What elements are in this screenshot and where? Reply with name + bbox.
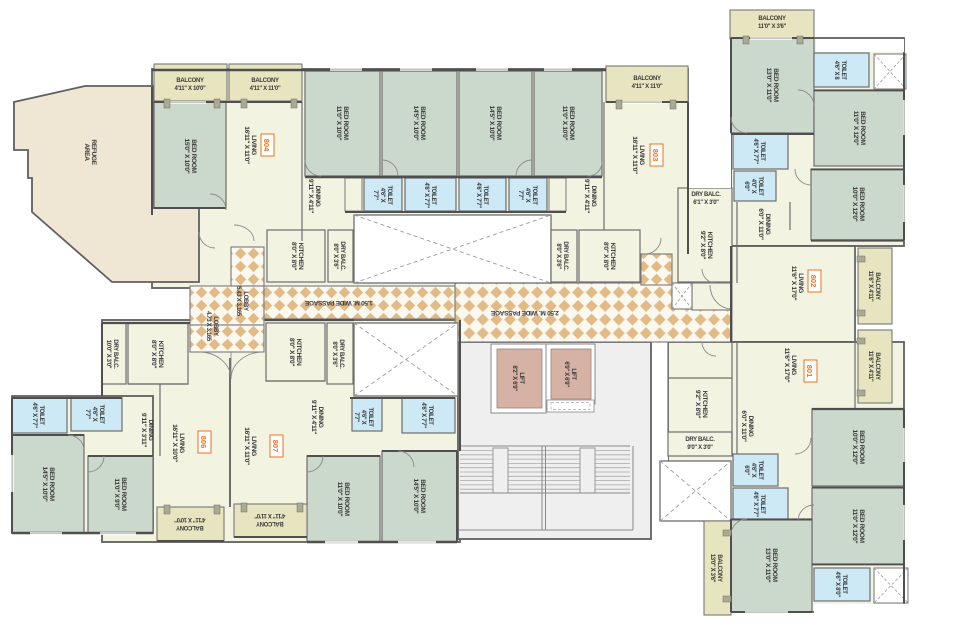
svg-text:7'7": 7'7" (84, 409, 90, 419)
svg-text:4'6" X 7'7": 4'6" X 7'7" (475, 182, 481, 208)
svg-text:6'9" X 6'9": 6'9" X 6'9" (563, 361, 569, 387)
svg-text:DRY BALC.: DRY BALC. (112, 339, 118, 369)
svg-text:13'0" X 11'0": 13'0" X 11'0" (765, 68, 772, 103)
svg-text:11'0" X 10'0": 11'0" X 10'0" (561, 106, 568, 141)
svg-text:LIVING: LIVING (250, 135, 257, 155)
svg-text:KITCHEN: KITCHEN (297, 243, 304, 270)
svg-text:4'11" X 10'0": 4'11" X 10'0" (174, 86, 206, 92)
svg-text:DINING: DINING (317, 407, 324, 428)
svg-text:KITCHEN: KITCHEN (295, 339, 302, 366)
svg-text:11'6" X 4'11": 11'6" X 4'11" (867, 351, 873, 382)
svg-text:804: 804 (262, 139, 271, 152)
svg-text:15'0" X 10'0": 15'0" X 10'0" (183, 139, 190, 174)
svg-text:REFUGE: REFUGE (90, 139, 97, 165)
svg-text:8'0" X 8'0": 8'0" X 8'0" (602, 242, 609, 270)
svg-text:802: 802 (809, 275, 818, 288)
svg-text:AREA: AREA (83, 143, 90, 161)
svg-text:LIVING: LIVING (250, 436, 257, 456)
svg-text:DRY BALC.: DRY BALC. (685, 437, 715, 443)
svg-text:LIVING: LIVING (638, 145, 645, 165)
svg-text:11'0" X 9'0": 11'0" X 9'0" (113, 478, 120, 509)
svg-text:8'0" X 3'6": 8'0" X 3'6" (555, 243, 561, 269)
svg-text:BED ROOM: BED ROOM (419, 106, 426, 140)
svg-text:9'11" X 4'11": 9'11" X 4'11" (307, 179, 314, 213)
svg-text:1.50 M. WIDE PASSAGE: 1.50 M. WIDE PASSAGE (304, 299, 373, 306)
svg-text:10'0" X 12'0": 10'0" X 12'0" (851, 187, 858, 222)
svg-text:13'0" X 11'0": 13'0" X 11'0" (764, 548, 771, 583)
svg-text:TOILET: TOILET (757, 176, 763, 196)
svg-text:TOILET: TOILET (759, 141, 765, 161)
svg-text:16'11" X 11'0": 16'11" X 11'0" (243, 427, 250, 465)
svg-text:16'11" X 11'0": 16'11" X 11'0" (631, 136, 638, 174)
svg-text:TOILET: TOILET (430, 185, 436, 205)
svg-text:4'11" X 10'0": 4'11" X 10'0" (174, 516, 206, 522)
svg-text:4'6" X: 4'6" X (91, 407, 97, 422)
svg-text:9'11" X 4'11": 9'11" X 4'11" (310, 400, 317, 434)
svg-text:5.43 X 3.165: 5.43 X 3.165 (235, 286, 241, 317)
svg-text:BED ROOM: BED ROOM (343, 482, 350, 516)
svg-text:BALCONY: BALCONY (176, 524, 204, 530)
svg-text:807: 807 (271, 440, 280, 453)
svg-text:BALCONY: BALCONY (758, 16, 786, 22)
svg-text:LOBBY: LOBBY (242, 291, 248, 311)
svg-text:14'5" X 10'0": 14'5" X 10'0" (41, 467, 48, 502)
svg-text:7'7": 7'7" (372, 190, 378, 200)
svg-text:16'11" X 10'0": 16'11" X 10'0" (171, 424, 178, 462)
svg-text:DRY BALC.: DRY BALC. (691, 192, 721, 198)
svg-text:BED ROOM: BED ROOM (771, 548, 778, 582)
svg-text:6'0" X 11'0": 6'0" X 11'0" (757, 208, 764, 239)
svg-text:806: 806 (199, 436, 208, 449)
svg-text:6'1" X 3'0": 6'1" X 3'0" (693, 200, 719, 206)
svg-text:6'0": 6'0" (743, 465, 749, 475)
svg-text:4'11" X 11'0": 4'11" X 11'0" (632, 84, 663, 90)
svg-text:4'6" X: 4'6" X (360, 410, 366, 425)
svg-text:801: 801 (805, 365, 814, 378)
svg-text:TOILET: TOILET (38, 405, 44, 425)
svg-text:DINING: DINING (764, 214, 771, 235)
svg-text:16'11" X 11'0": 16'11" X 11'0" (243, 126, 250, 164)
svg-text:TOILET: TOILET (531, 185, 537, 205)
svg-text:10'0" X 3'0": 10'0" X 3'0" (105, 340, 111, 369)
svg-text:BALCONY: BALCONY (256, 520, 284, 526)
svg-text:TOILET: TOILET (427, 405, 433, 425)
svg-text:11'0" X 10'0": 11'0" X 10'0" (336, 482, 343, 517)
svg-text:803: 803 (651, 149, 660, 162)
svg-text:BED ROOM: BED ROOM (568, 106, 575, 140)
svg-text:4'6" X 7'7": 4'6" X 7'7" (752, 491, 758, 517)
svg-text:14'5" X 10'0": 14'5" X 10'0" (412, 479, 419, 514)
svg-text:14'5" X 10'0": 14'5" X 10'0" (488, 106, 495, 141)
svg-text:8'0" X 8'0": 8'0" X 8'0" (150, 340, 157, 368)
svg-text:4'6" X: 4'6" X (750, 463, 756, 478)
svg-text:KITCHEN: KITCHEN (706, 232, 713, 259)
svg-text:DINING: DINING (147, 420, 154, 441)
svg-text:LIFT: LIFT (570, 368, 576, 380)
svg-text:4'11" X 11'0": 4'11" X 11'0" (254, 512, 285, 518)
svg-text:4'6" X: 4'6" X (524, 188, 530, 203)
svg-text:9'0" X 3'0": 9'0" X 3'0" (687, 445, 713, 451)
svg-text:LIVING: LIVING (797, 273, 804, 293)
svg-text:8'2" X 6'9": 8'2" X 6'9" (511, 365, 517, 391)
svg-text:BALCONY: BALCONY (176, 78, 204, 84)
svg-text:4'6" X 7'7": 4'6" X 7'7" (423, 182, 429, 208)
svg-text:DINING: DINING (590, 186, 597, 207)
svg-text:KITCHEN: KITCHEN (701, 391, 708, 418)
svg-text:11'6" X 17'0": 11'6" X 17'0" (783, 348, 790, 383)
svg-text:BED ROOM: BED ROOM (495, 106, 502, 140)
svg-text:11'6" X 4'11": 11'6" X 4'11" (867, 271, 873, 302)
svg-text:9'11" X 4'11": 9'11" X 4'11" (583, 179, 590, 213)
svg-text:LOBBY: LOBBY (212, 316, 218, 336)
svg-text:11'0" X 12'0": 11'0" X 12'0" (851, 509, 858, 544)
svg-text:11'0" X 3'6": 11'0" X 3'6" (758, 24, 787, 30)
svg-text:8'0" X 8'0": 8'0" X 8'0" (288, 338, 295, 366)
svg-text:KITCHEN: KITCHEN (609, 243, 616, 270)
svg-text:LIVING: LIVING (178, 433, 185, 453)
svg-text:BED ROOM: BED ROOM (48, 467, 55, 501)
svg-text:TOILET: TOILET (757, 460, 763, 480)
svg-text:BED ROOM: BED ROOM (859, 111, 866, 145)
svg-text:9'2" X 8'0": 9'2" X 8'0" (699, 231, 706, 259)
svg-text:TOILET: TOILET (98, 404, 104, 424)
svg-text:10'0" X 12'0": 10'0" X 12'0" (851, 430, 858, 465)
svg-text:11'6" X 17'0": 11'6" X 17'0" (790, 266, 797, 301)
svg-text:4'11" X 11'0": 4'11" X 11'0" (250, 86, 281, 92)
svg-text:4'6" X 7'7": 4'6" X 7'7" (420, 402, 426, 428)
svg-text:BED ROOM: BED ROOM (858, 187, 865, 221)
svg-text:6'0": 6'0" (743, 181, 749, 191)
svg-text:13'0" X 3'6": 13'0" X 3'6" (709, 554, 715, 583)
svg-text:DRY BALC.: DRY BALC. (338, 339, 344, 369)
svg-text:BALCONY: BALCONY (874, 272, 880, 300)
svg-text:7'7": 7'7" (353, 412, 359, 422)
svg-text:8'0" X 3'6": 8'0" X 3'6" (331, 341, 337, 367)
svg-text:2.50 M. WIDE PASSAGE: 2.50 M. WIDE PASSAGE (490, 309, 559, 316)
svg-text:4'6" X 8'0": 4'6" X 8'0" (834, 571, 840, 597)
svg-text:BALCONY: BALCONY (251, 78, 279, 84)
svg-text:LIFT: LIFT (518, 372, 524, 384)
svg-text:9'11" X 3'11": 9'11" X 3'11" (140, 413, 147, 447)
svg-text:8'0" X 3'6": 8'0" X 3'6" (332, 243, 338, 269)
svg-text:BED ROOM: BED ROOM (858, 430, 865, 464)
svg-text:DINING: DINING (314, 186, 321, 207)
svg-text:KITCHEN: KITCHEN (157, 341, 164, 368)
svg-text:4.73 X 3.165: 4.73 X 3.165 (205, 311, 211, 342)
svg-text:TOILET: TOILET (759, 494, 765, 514)
svg-text:TOILET: TOILET (386, 185, 392, 205)
svg-text:14'5" X 10'0": 14'5" X 10'0" (412, 106, 419, 141)
svg-text:6'0" X 11'0": 6'0" X 11'0" (740, 410, 747, 441)
svg-text:BED ROOM: BED ROOM (858, 509, 865, 543)
svg-text:TOILET: TOILET (367, 407, 373, 427)
svg-text:LIVING: LIVING (790, 355, 797, 375)
svg-text:BED ROOM: BED ROOM (190, 139, 197, 173)
svg-text:DRY BALC.: DRY BALC. (562, 241, 568, 271)
svg-text:7'7": 7'7" (517, 190, 523, 200)
svg-text:TOILET: TOILET (841, 574, 847, 594)
svg-text:BED ROOM: BED ROOM (342, 106, 349, 140)
svg-text:BED ROOM: BED ROOM (120, 477, 127, 511)
svg-text:9'2" X 8'0": 9'2" X 8'0" (694, 390, 701, 418)
svg-text:BALCONY: BALCONY (633, 76, 661, 82)
svg-text:8'0" X 8'0": 8'0" X 8'0" (290, 242, 297, 270)
svg-text:11'0" X 12'0": 11'0" X 12'0" (852, 111, 859, 146)
svg-text:DINING: DINING (747, 416, 754, 437)
svg-text:4'6" X 7'7": 4'6" X 7'7" (752, 138, 758, 164)
svg-text:4'6" X 8: 4'6" X 8 (833, 61, 839, 81)
svg-text:11'0" X 10'0": 11'0" X 10'0" (335, 106, 342, 141)
svg-text:BED ROOM: BED ROOM (419, 479, 426, 513)
svg-text:4'0" X: 4'0" X (750, 179, 756, 194)
svg-text:4'6" X: 4'6" X (379, 188, 385, 203)
svg-text:BALCONY: BALCONY (716, 554, 722, 582)
svg-text:TOILET: TOILET (840, 60, 846, 80)
svg-text:4'6" X 7'7": 4'6" X 7'7" (31, 402, 37, 428)
svg-text:BALCONY: BALCONY (874, 352, 880, 380)
svg-text:DRY BALC.: DRY BALC. (339, 241, 345, 271)
svg-text:TOILET: TOILET (482, 185, 488, 205)
svg-text:BED ROOM: BED ROOM (772, 68, 779, 102)
